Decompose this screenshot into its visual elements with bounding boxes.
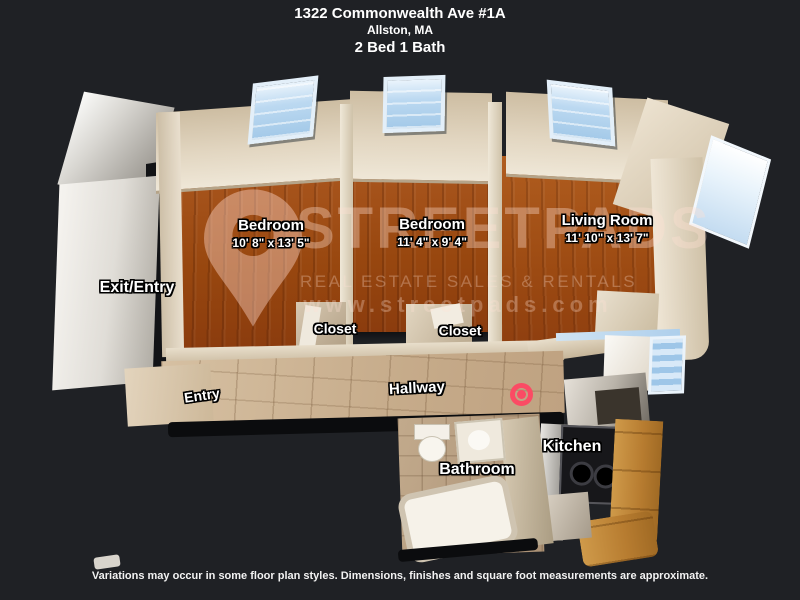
marker-dot xyxy=(517,390,526,399)
closet-left-label: Closet xyxy=(314,320,357,338)
room-name: Bedroom xyxy=(397,216,467,235)
exit-entry-label: Exit/Entry xyxy=(100,278,175,298)
bedroom1-label: Bedroom 10' 8" x 13' 5" xyxy=(232,217,309,251)
toilet-bowl xyxy=(418,436,446,462)
streetpads-pin-icon xyxy=(204,184,302,332)
room-name: Bedroom xyxy=(232,217,309,236)
bathroom-sink xyxy=(454,418,505,464)
skylight-window xyxy=(248,75,319,144)
living-room-label: Living Room 11' 10" x 13' 7" xyxy=(562,212,653,246)
listing-beds-baths: 2 Bed 1 Bath xyxy=(0,39,800,56)
room-dimensions: 10' 8" x 13' 5" xyxy=(232,236,309,251)
debris-fragment xyxy=(93,554,120,570)
listing-address: 1322 Commonwealth Ave #1A xyxy=(0,5,800,22)
listing-city: Allston, MA xyxy=(0,23,800,37)
tour-start-marker[interactable] xyxy=(510,383,533,406)
living-divider-wall xyxy=(488,102,502,348)
skylight-window xyxy=(547,80,616,147)
kitchen-label: Kitchen xyxy=(543,437,602,457)
skylight-window xyxy=(383,75,446,133)
bedroom2-label: Bedroom 11' 4" x 9' 4" xyxy=(397,216,467,250)
disclaimer-text: Variations may occur in some floor plan … xyxy=(0,570,800,582)
room-dimensions: 11' 4" x 9' 4" xyxy=(397,235,467,250)
kitchen-window xyxy=(648,335,686,394)
closet-right-label: Closet xyxy=(439,322,482,340)
bathroom-label: Bathroom xyxy=(439,460,515,480)
sink-basin xyxy=(467,429,491,451)
bedroom1-left-wall xyxy=(158,112,184,357)
room-name: Living Room xyxy=(562,212,653,231)
burner xyxy=(569,461,594,486)
hallway-label: Hallway xyxy=(389,378,446,400)
room-dimensions: 11' 10" x 13' 7" xyxy=(562,231,653,246)
floor-plan-image: STREETPADS REAL ESTATE SALES & RENTALS w… xyxy=(0,0,800,600)
